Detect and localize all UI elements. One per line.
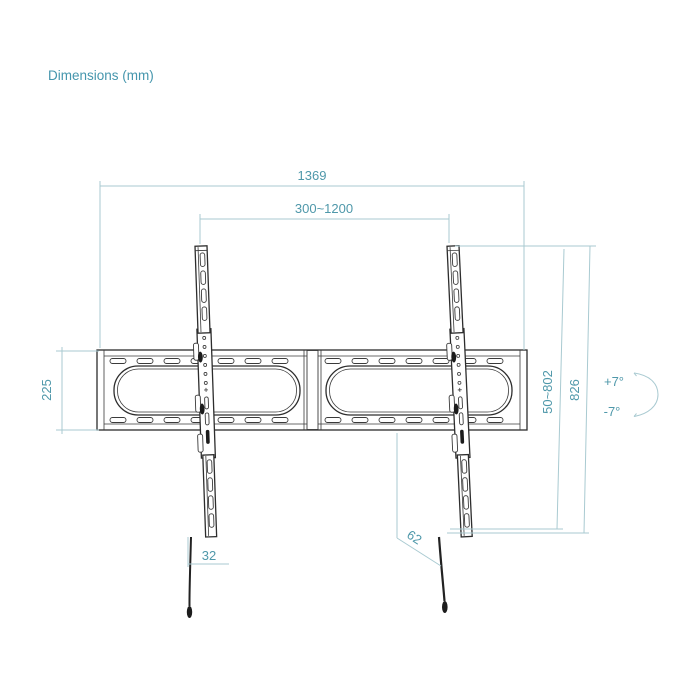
tilt-arc (634, 373, 658, 417)
mount-width-range-label: 300~1200 (295, 201, 353, 216)
tilt-up-label: +7° (604, 374, 624, 389)
mount-height-range-label: 50~802 (540, 370, 555, 414)
overall-width-label: 1369 (298, 168, 327, 183)
dimension-depth: 62 (397, 433, 441, 566)
dimension-mount-width-range: 300~1200 (200, 201, 449, 244)
tv-mount-technical-drawing: 1369 300~1200 225 50~802 826 +7° -7° 32 (0, 0, 700, 700)
dimension-rail-height: 225 (39, 347, 99, 434)
overall-height-label: 826 (567, 379, 582, 401)
dimension-string-offset: 32 (188, 537, 229, 567)
tilt-indicator: +7° -7° (604, 373, 658, 419)
string-offset-label: 32 (202, 548, 216, 563)
right-pull-string (439, 537, 448, 613)
dimension-diagram-page: Dimensions (mm) (0, 0, 700, 700)
tilt-down-label: -7° (604, 404, 621, 419)
rail-height-label: 225 (39, 379, 54, 401)
